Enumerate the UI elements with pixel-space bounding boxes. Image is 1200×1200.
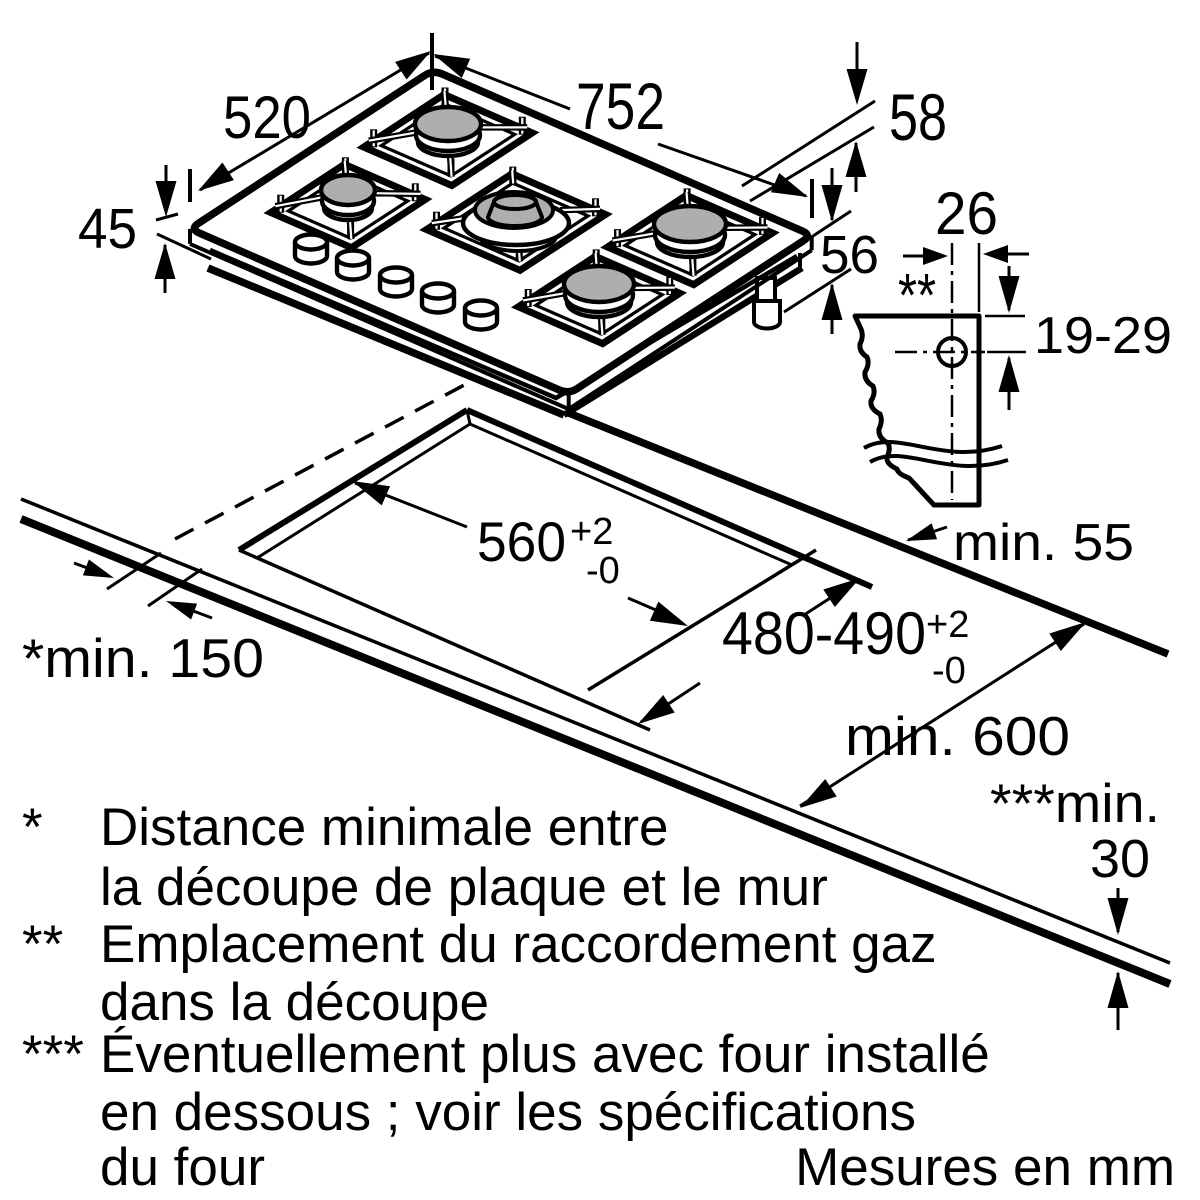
svg-text:du four: du four — [100, 1138, 265, 1197]
svg-text:Mesures en mm: Mesures en mm — [795, 1138, 1175, 1197]
svg-text:560: 560 — [477, 510, 566, 573]
svg-text:-0: -0 — [586, 550, 620, 592]
svg-text:***: *** — [22, 1025, 84, 1084]
svg-text:58: 58 — [889, 80, 947, 154]
svg-text:**: ** — [898, 261, 936, 329]
svg-text:Éventuellement plus avec four: Éventuellement plus avec four installé — [100, 1025, 990, 1084]
svg-text:min. 600: min. 600 — [845, 705, 1070, 767]
svg-text:Distance minimale entre: Distance minimale entre — [100, 798, 669, 857]
svg-text:en dessous ; voir les spécific: en dessous ; voir les spécifications — [100, 1083, 916, 1142]
svg-text:+2: +2 — [926, 604, 969, 646]
svg-text:520: 520 — [223, 84, 311, 151]
svg-text:480-490: 480-490 — [722, 600, 926, 667]
svg-text:la découpe de plaque et le mur: la découpe de plaque et le mur — [100, 858, 828, 917]
svg-text:dans la découpe: dans la découpe — [100, 973, 489, 1032]
svg-text:30: 30 — [1090, 829, 1150, 889]
svg-text:Emplacement du raccordement ga: Emplacement du raccordement gaz — [100, 915, 937, 974]
svg-text:**: ** — [22, 915, 63, 974]
svg-text:*min. 150: *min. 150 — [22, 627, 264, 689]
svg-text:45: 45 — [78, 197, 137, 261]
svg-text:56: 56 — [820, 225, 879, 285]
svg-text:+2: +2 — [570, 511, 613, 553]
svg-text:19-29: 19-29 — [1034, 307, 1172, 365]
svg-text:-0: -0 — [932, 650, 966, 692]
svg-text:min. 55: min. 55 — [953, 514, 1134, 572]
svg-text:752: 752 — [576, 69, 665, 143]
svg-text:***min.: ***min. — [990, 772, 1160, 834]
svg-text:26: 26 — [935, 180, 998, 247]
svg-text:*: * — [22, 798, 43, 857]
